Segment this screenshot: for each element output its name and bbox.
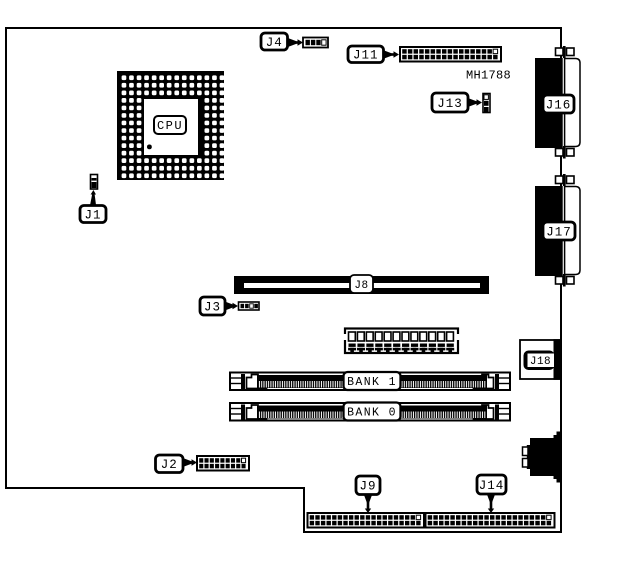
svg-text:J17: J17 [546, 225, 572, 239]
svg-text:BANK 0: BANK 0 [347, 407, 397, 420]
svg-text:J18: J18 [530, 356, 551, 368]
svg-text:J4: J4 [266, 36, 283, 50]
svg-text:J16: J16 [546, 98, 572, 112]
svg-text:J13: J13 [437, 97, 463, 111]
svg-text:MH1788: MH1788 [466, 69, 511, 83]
svg-text:CPU: CPU [157, 119, 183, 133]
svg-text:J14: J14 [479, 479, 505, 493]
svg-text:J3: J3 [204, 300, 221, 314]
svg-text:J8: J8 [354, 280, 368, 292]
svg-text:J1: J1 [84, 208, 101, 222]
svg-text:J9: J9 [359, 480, 376, 494]
svg-text:BANK 1: BANK 1 [347, 376, 397, 389]
svg-text:J11: J11 [353, 49, 379, 63]
svg-text:J2: J2 [161, 458, 178, 472]
